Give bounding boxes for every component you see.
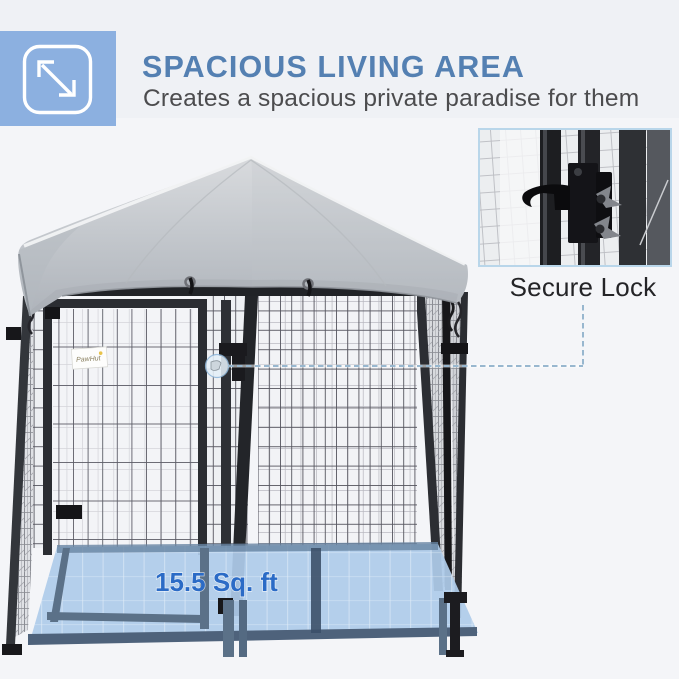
svg-text:Creates a spacious private par: Creates a spacious private paradise for …: [143, 85, 639, 112]
svg-text:15.5 Sq. ft: 15.5 Sq. ft: [155, 567, 278, 597]
svg-text:SPACIOUS LIVING AREA: SPACIOUS LIVING AREA: [142, 50, 525, 84]
svg-text:Secure Lock: Secure Lock: [510, 272, 658, 302]
